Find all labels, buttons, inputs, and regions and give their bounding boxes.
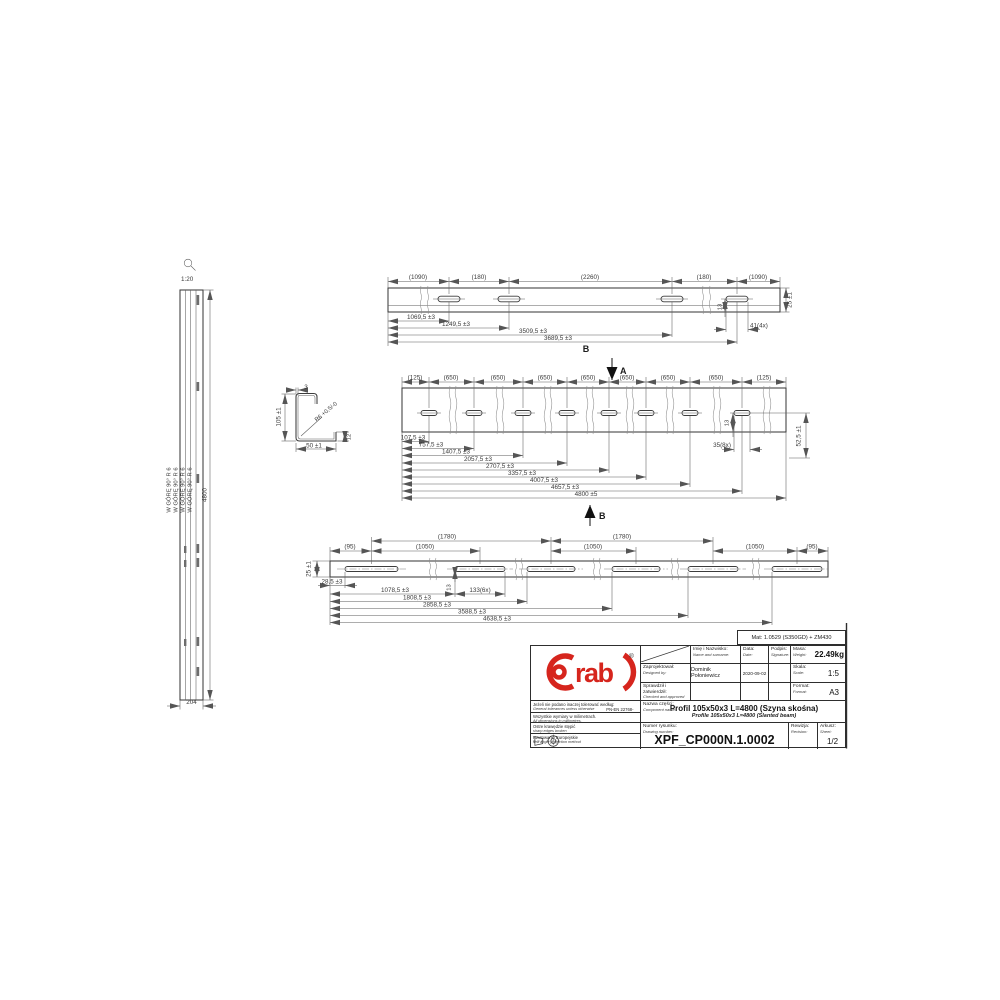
header-signature-cell: Podpis: Signature: bbox=[769, 646, 791, 664]
dim-label: 13 bbox=[718, 304, 724, 310]
bend-note: W GÓRĘ 90° R 6 bbox=[173, 467, 180, 512]
projection-note-cell: Rzutowanie Europejskie first angle proje… bbox=[531, 734, 641, 749]
checked-signature-empty-cell bbox=[769, 683, 791, 701]
designed-by-cell: Zaprojektował: Designed by: bbox=[641, 664, 691, 683]
registered-mark-icon: ® bbox=[629, 652, 634, 660]
label-designed-en: Designed by: bbox=[643, 671, 688, 676]
dim-label: 13 bbox=[725, 420, 731, 426]
dim-label: 12 bbox=[347, 434, 353, 440]
label-date-en: Date: bbox=[743, 653, 766, 658]
dim-label: 1407,5 ±3 bbox=[442, 449, 470, 456]
scale-value: 1:5 bbox=[828, 669, 839, 678]
dim-label: 105 ±1 bbox=[276, 407, 283, 427]
dim-label: (650) bbox=[661, 375, 676, 382]
dim-label: (95) bbox=[806, 544, 817, 551]
format-value: A3 bbox=[829, 688, 839, 697]
dim-label: 2858,5 ±3 bbox=[423, 602, 451, 609]
dim-label: 4657,5 ±3 bbox=[551, 484, 579, 491]
edges-note-cell: Ostre krawędzie stępić sharp edges broke… bbox=[531, 723, 641, 734]
dim-label: 28,5 ±3 bbox=[322, 579, 343, 586]
top-view-linework bbox=[388, 277, 790, 346]
header-name-cell: Imię i Nazwisko: Name and surname: bbox=[691, 646, 741, 664]
mass-value: 22.49kg bbox=[815, 650, 844, 659]
dim-label: 52,5 ±1 bbox=[796, 425, 803, 446]
label-part-en: Component name: bbox=[643, 708, 676, 713]
checked-by-cell: Sprawdził i zatwierdził: Checked and app… bbox=[641, 683, 691, 701]
logo-cell: rab ® bbox=[531, 646, 641, 701]
dim-label: 107,5 ±3 bbox=[401, 435, 426, 442]
dim-label: (650) bbox=[581, 375, 596, 382]
sheet-cell: Arkusz: Sheet: 1/2 bbox=[818, 723, 847, 749]
dim-label: (125) bbox=[757, 375, 772, 382]
dim-label: 25 ±1 bbox=[787, 292, 794, 308]
technical-drawing: 1:20 W GÓRĘ 90° R 6 W GÓRĘ 90° R 6 W GÓR… bbox=[0, 0, 1000, 1000]
bend-note: W GÓRĘ 90° R 6 bbox=[180, 467, 187, 512]
dim-label: (180) bbox=[472, 274, 487, 281]
side-view-scale-label: 1:20 bbox=[181, 276, 194, 283]
scale-cell: Skala: Scale: 1:5 bbox=[791, 664, 847, 683]
bend-note: W GÓRĘ 90° R 6 bbox=[187, 467, 194, 512]
units-note-cell: Wszystkie wymiary w milimetrach. All dim… bbox=[531, 713, 641, 723]
sheet-value: 1/2 bbox=[818, 737, 847, 746]
label-revision-en: Revision: bbox=[791, 730, 815, 735]
mass-cell: Masa: Weight: 22.49kg bbox=[791, 646, 847, 664]
title-block: rab ® Imię i Nazwisko: Name and surname:… bbox=[530, 645, 846, 748]
dim-label: (650) bbox=[538, 375, 553, 382]
dim-label: 1249,5 ±3 bbox=[442, 321, 470, 328]
dim-label: 1069,5 ±3 bbox=[407, 314, 435, 321]
dim-label: (1050) bbox=[746, 544, 764, 551]
label-mass-en: Weight: bbox=[793, 653, 807, 658]
section-label-b: B bbox=[599, 511, 606, 521]
dim-label: 13 bbox=[447, 584, 453, 590]
designer-name: Dominik Połoniewicz bbox=[691, 667, 740, 679]
projection-symbol-icon bbox=[531, 734, 565, 748]
dim-label: 2057,5 ±3 bbox=[464, 456, 492, 463]
dim-label: 133(6x) bbox=[469, 587, 490, 594]
label-format-en: Format: bbox=[793, 690, 810, 695]
dim-label: 3 bbox=[304, 384, 308, 391]
material-note-text: Mat: 1.0529 (S350GD) + ZM430 bbox=[751, 635, 831, 641]
dim-label: 4638,5 ±3 bbox=[483, 616, 511, 623]
dim-label: 1808,5 ±3 bbox=[403, 595, 431, 602]
component-name-cell: Nazwa części: Component name: Profil 105… bbox=[641, 701, 847, 723]
dim-label: (95) bbox=[344, 544, 355, 551]
view-label-b: B bbox=[583, 344, 590, 354]
dim-label: (650) bbox=[620, 375, 635, 382]
label-scale-en: Scale: bbox=[793, 671, 806, 676]
dim-label: 4007,5 ±3 bbox=[530, 477, 558, 484]
revision-cell: Rewizja: Revision: bbox=[789, 723, 818, 749]
dim-label: 25 ±1 bbox=[306, 561, 313, 577]
dim-label: (1780) bbox=[438, 534, 456, 541]
label-sheet-en: Sheet: bbox=[820, 730, 845, 735]
design-date-cell: 2020-09-02 bbox=[741, 664, 769, 683]
signature-empty-cell bbox=[769, 664, 791, 683]
dim-label: (125) bbox=[408, 375, 423, 382]
dim-label: (650) bbox=[709, 375, 724, 382]
dim-label: (2260) bbox=[581, 274, 599, 281]
part-name-en: Profile 105x50x3 L=4800 (Slanted beam) bbox=[641, 713, 847, 719]
label-signature-en: Signature: bbox=[771, 653, 788, 658]
dim-label: (650) bbox=[444, 375, 459, 382]
dim-label: 2707,5 ±3 bbox=[486, 463, 514, 470]
dim-label: (1780) bbox=[613, 534, 631, 541]
dim-label: 3509,5 ±3 bbox=[519, 328, 547, 335]
dim-label: 4800 ±5 bbox=[575, 491, 598, 498]
checked-date-empty-cell bbox=[741, 683, 769, 701]
dim-label: (1090) bbox=[749, 274, 767, 281]
material-note: Mat: 1.0529 (S350GD) + ZM430 bbox=[737, 630, 846, 645]
dim-label: (1050) bbox=[416, 544, 434, 551]
dim-label: 41(4x) bbox=[750, 323, 768, 330]
dim-label: 3689,5 ±3 bbox=[544, 335, 572, 342]
dim-label: 204 bbox=[186, 699, 197, 706]
dim-label: 3357,5 ±3 bbox=[508, 470, 536, 477]
engineering-drawing-sheet: 1:20 W GÓRĘ 90° R 6 W GÓRĘ 90° R 6 W GÓR… bbox=[0, 0, 1000, 1000]
checked-name-empty-cell bbox=[691, 683, 741, 701]
dim-label: 35(8x) bbox=[713, 442, 731, 449]
dim-label: (650) bbox=[491, 375, 506, 382]
main-view-linework bbox=[402, 358, 810, 526]
dim-label: R6 +0,5/-0 bbox=[314, 401, 339, 423]
label-name-en: Name and surname: bbox=[693, 653, 738, 658]
dim-label: (180) bbox=[697, 274, 712, 281]
dim-label: 4800 bbox=[202, 488, 209, 503]
drawing-number-cell: Numer rysunku: Drawing number: XPF_CP000… bbox=[641, 723, 789, 749]
header-date-cell: Data: Date: bbox=[741, 646, 769, 664]
dim-label: 1078,5 ±3 bbox=[381, 587, 409, 594]
dim-label: 757,5 ±3 bbox=[419, 442, 444, 449]
dim-label: 3588,5 ±3 bbox=[458, 609, 486, 616]
dim-label: 50 ±1 bbox=[306, 443, 322, 450]
bend-note: W GÓRĘ 90° R 6 bbox=[166, 467, 173, 512]
designer-name-cell: Dominik Połoniewicz bbox=[691, 664, 741, 683]
logo-text: rab bbox=[575, 658, 614, 688]
dim-label: (1090) bbox=[409, 274, 427, 281]
design-date: 2020-09-02 bbox=[743, 671, 767, 676]
diagonal-cell bbox=[641, 646, 691, 664]
tolerance-note-cell: Jeżeli nie podano inaczej tolerować wedł… bbox=[531, 701, 641, 713]
dim-label: (1050) bbox=[584, 544, 602, 551]
corab-logo: rab ® bbox=[531, 646, 639, 699]
format-cell: Format: Format: A3 bbox=[791, 683, 847, 701]
label-number-en: Drawing number: bbox=[643, 730, 677, 735]
